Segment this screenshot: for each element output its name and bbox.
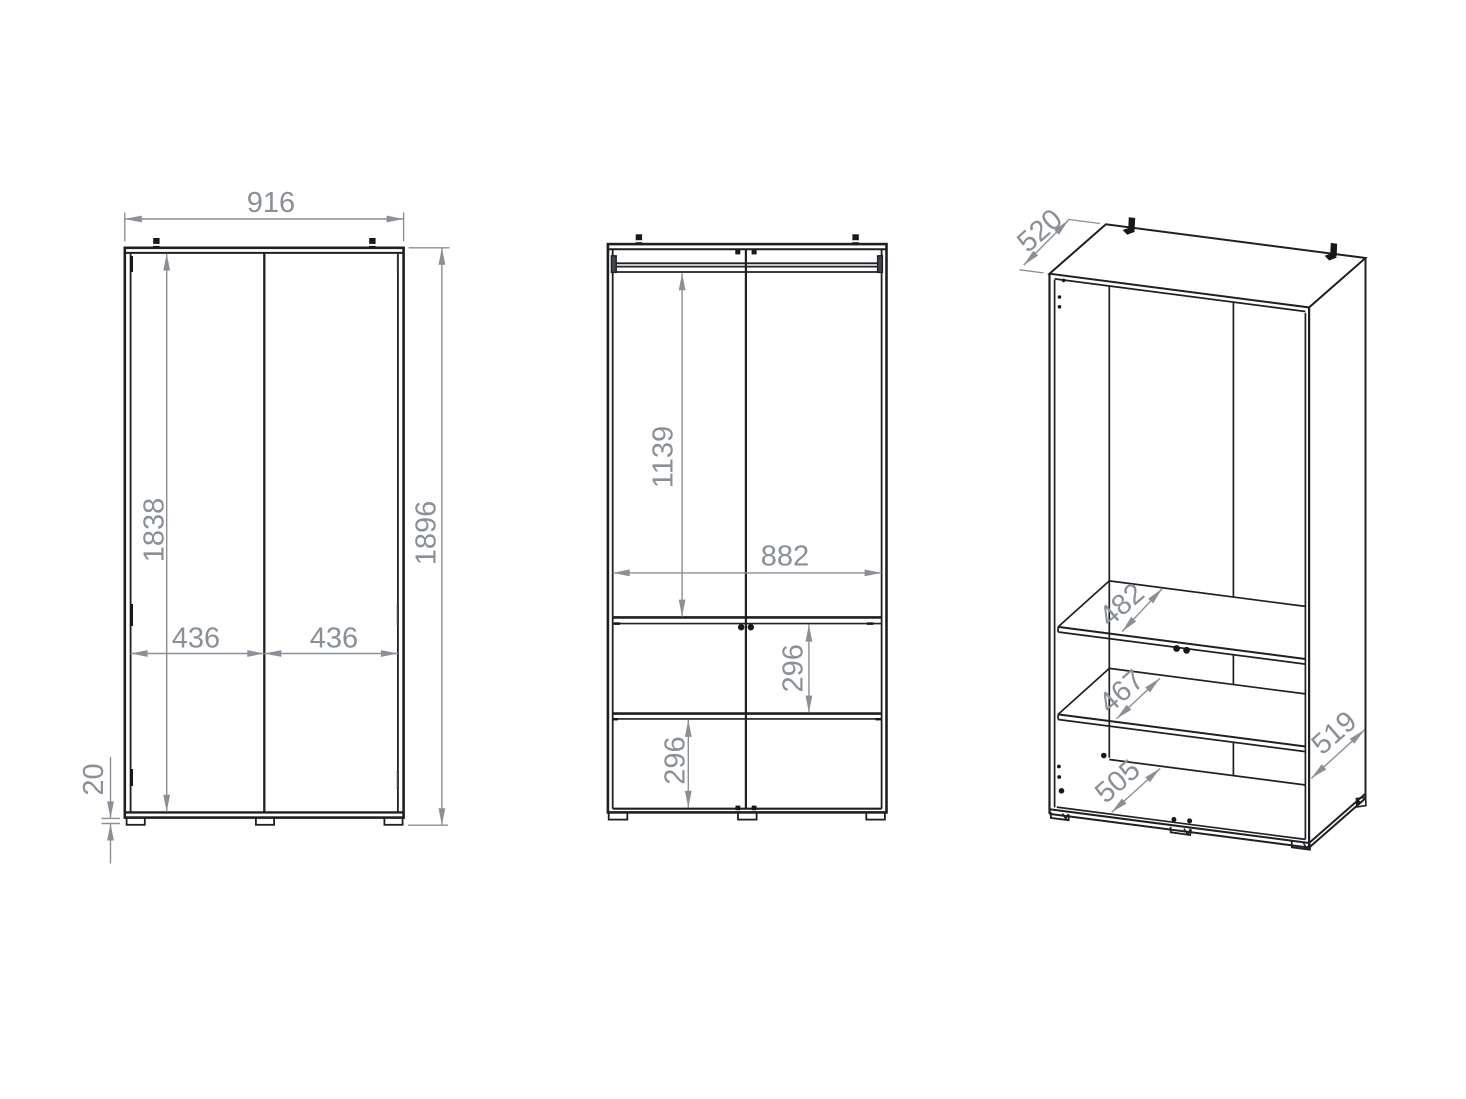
svg-text:296: 296 xyxy=(659,736,691,784)
svg-text:916: 916 xyxy=(247,187,295,219)
svg-text:436: 436 xyxy=(172,623,220,655)
svg-text:436: 436 xyxy=(310,623,358,655)
svg-text:1838: 1838 xyxy=(139,498,171,563)
svg-text:882: 882 xyxy=(761,540,809,572)
svg-text:20: 20 xyxy=(78,763,110,795)
svg-text:296: 296 xyxy=(778,644,810,692)
svg-text:1139: 1139 xyxy=(648,426,680,488)
svg-text:1896: 1896 xyxy=(411,501,443,566)
